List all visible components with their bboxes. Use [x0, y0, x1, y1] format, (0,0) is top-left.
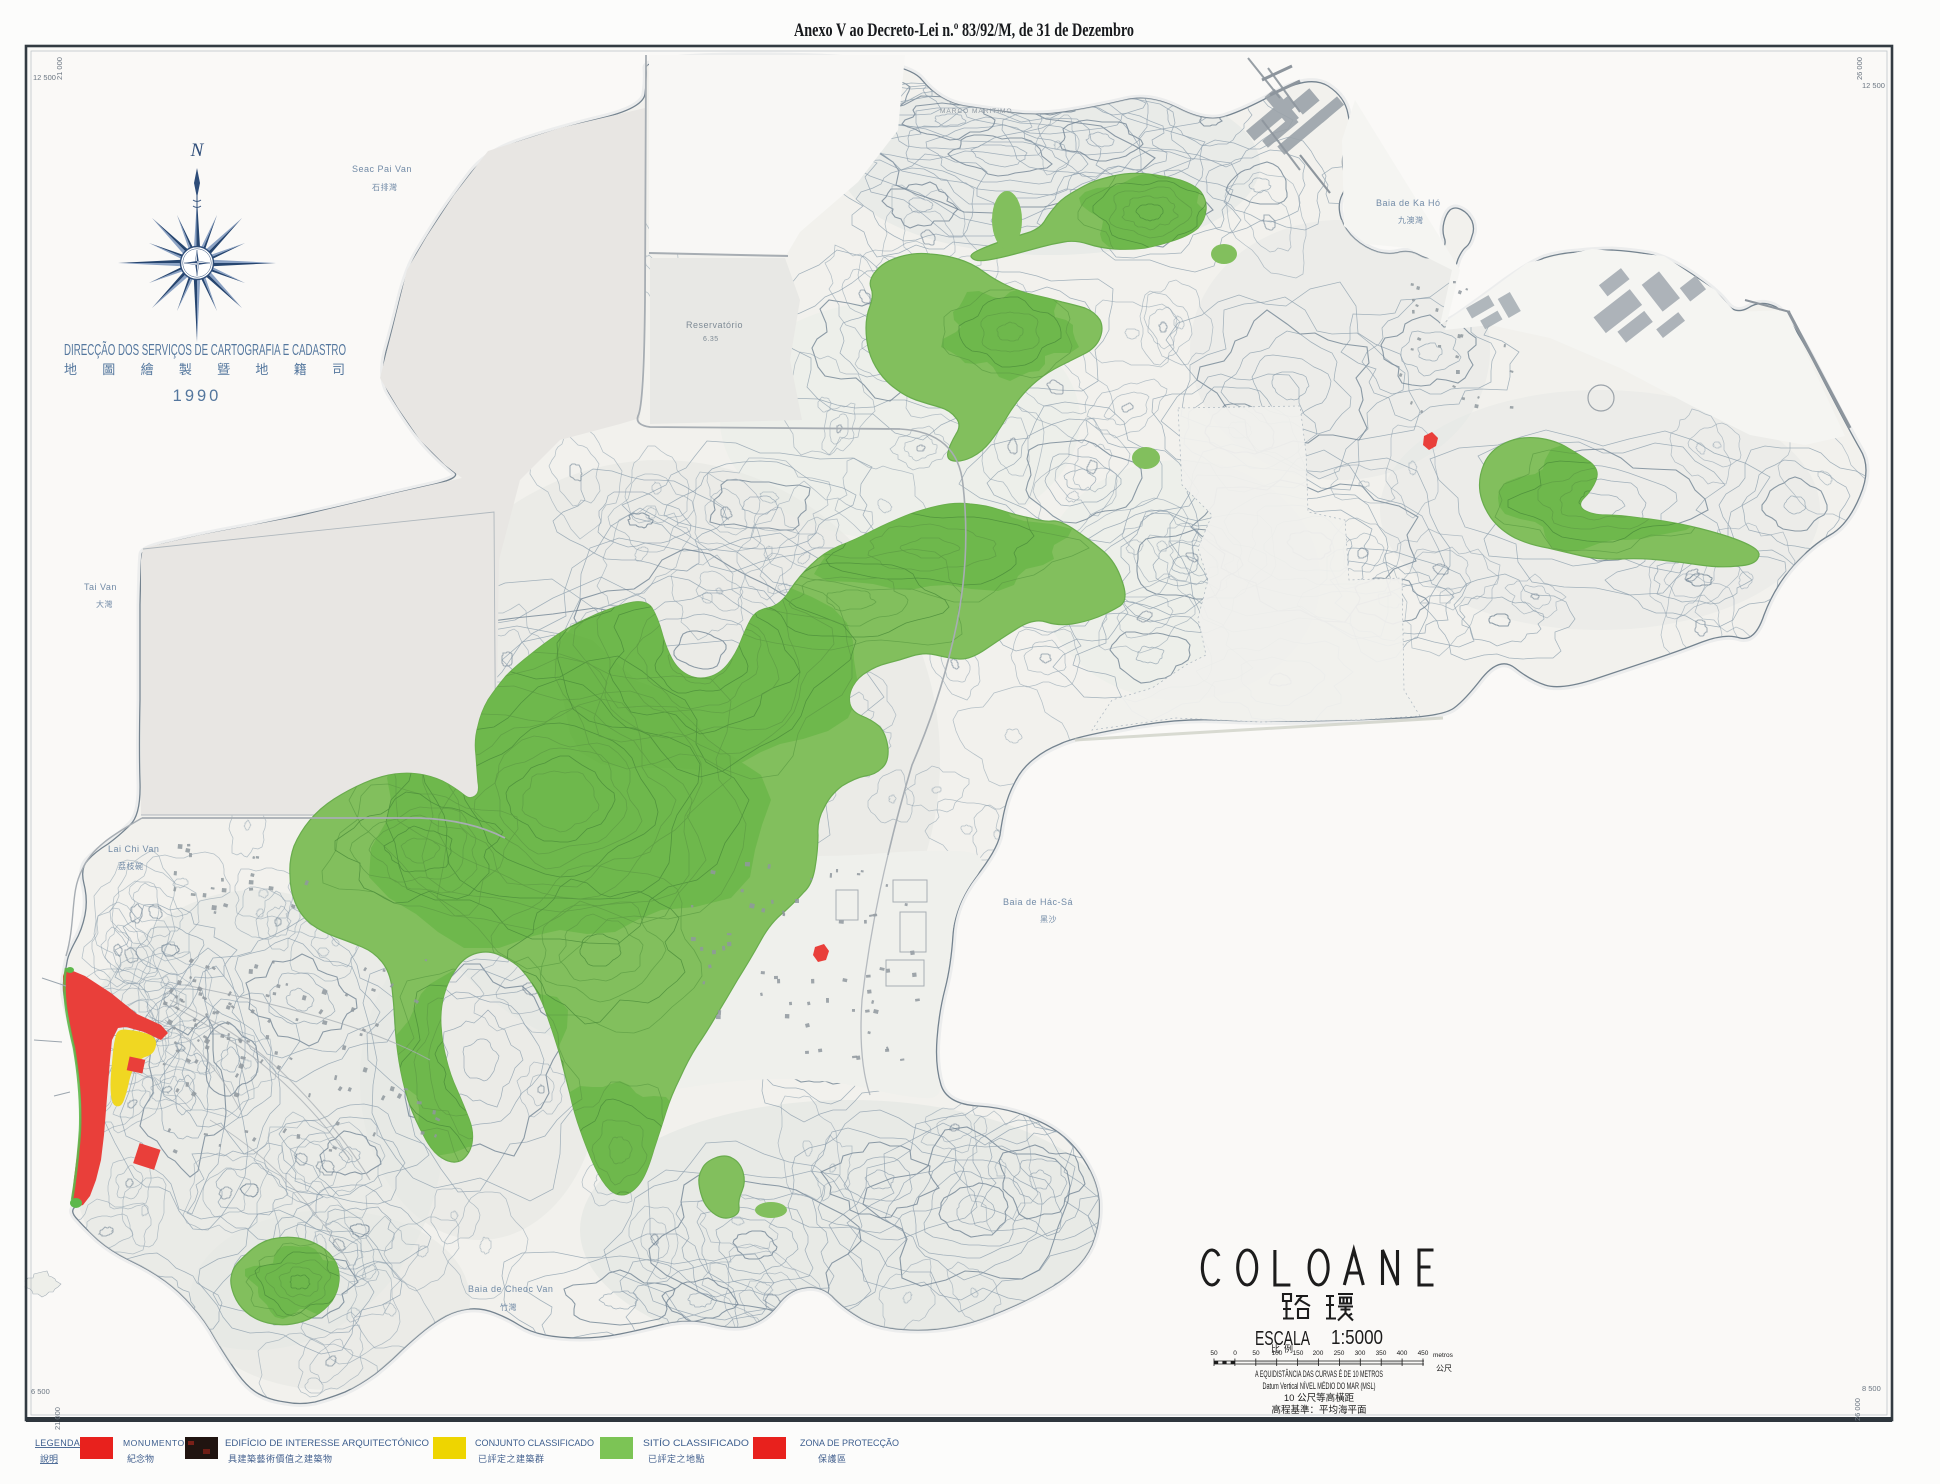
svg-text:高程基準：平均海平面: 高程基準：平均海平面 [1271, 1404, 1366, 1416]
svg-text:26 000: 26 000 [1853, 1398, 1862, 1421]
svg-text:MONUMENTO: MONUMENTO [123, 1438, 185, 1448]
svg-text:公尺: 公尺 [1436, 1364, 1452, 1373]
svg-text:250: 250 [1334, 1350, 1345, 1357]
svg-text:10 公尺等高橫距: 10 公尺等高橫距 [1284, 1392, 1355, 1404]
svg-text:說明: 說明 [40, 1453, 58, 1464]
svg-text:LEGENDA: LEGENDA [35, 1438, 80, 1448]
svg-text:0: 0 [1233, 1350, 1237, 1357]
svg-text:已評定之地點: 已評定之地點 [648, 1453, 705, 1464]
svg-text:21 000: 21 000 [55, 57, 64, 80]
svg-text:26 000: 26 000 [1855, 57, 1864, 80]
svg-text:21 000: 21 000 [53, 1407, 62, 1430]
svg-text:6 500: 6 500 [31, 1387, 50, 1396]
svg-text:1:5000: 1:5000 [1331, 1327, 1383, 1349]
svg-text:400: 400 [1397, 1350, 1408, 1357]
svg-text:450: 450 [1418, 1350, 1429, 1357]
svg-text:EDIFÍCIO DE INTERESSE ARQUITEC: EDIFÍCIO DE INTERESSE ARQUITECTÓNICO [225, 1438, 429, 1448]
svg-text:1990: 1990 [173, 387, 222, 405]
svg-text:紀念物: 紀念物 [127, 1453, 154, 1464]
svg-text:50: 50 [1252, 1350, 1260, 1357]
svg-text:CONJUNTO CLASSIFICADO: CONJUNTO CLASSIFICADO [475, 1438, 594, 1448]
svg-text:已評定之建築群: 已評定之建築群 [478, 1453, 545, 1464]
svg-text:具建築藝術價值之建築物: 具建築藝術價值之建築物 [228, 1453, 333, 1464]
svg-text:12 500: 12 500 [1862, 81, 1885, 90]
svg-text:ZONA DE PROTECÇÃO: ZONA DE PROTECÇÃO [800, 1438, 899, 1448]
svg-text:DIRECÇÃO DOS SERVIÇOS DE CARTO: DIRECÇÃO DOS SERVIÇOS DE CARTOGRAFIA E C… [64, 339, 346, 359]
svg-text:metros: metros [1433, 1352, 1454, 1359]
svg-text:200: 200 [1313, 1350, 1324, 1357]
svg-text:SITÍO CLASSIFICADO: SITÍO CLASSIFICADO [643, 1438, 749, 1448]
svg-text:50: 50 [1210, 1350, 1218, 1357]
svg-text:N: N [190, 140, 205, 161]
svg-text:Datum Vertical NÍVEL MÉDIO DO: Datum Vertical NÍVEL MÉDIO DO MAR (MSL) [1263, 1381, 1376, 1391]
svg-text:Anexo V ao Decreto-Lei n.º 83/: Anexo V ao Decreto-Lei n.º 83/92/M, de 3… [794, 20, 1134, 41]
svg-text:100: 100 [1272, 1350, 1283, 1357]
svg-text:12 500: 12 500 [33, 73, 56, 82]
svg-text:350: 350 [1376, 1350, 1387, 1357]
svg-text:A EQUIDISTÂNCIA DAS CURVAS É D: A EQUIDISTÂNCIA DAS CURVAS É DE 10 METRO… [1255, 1369, 1383, 1380]
svg-text:8 500: 8 500 [1862, 1384, 1881, 1393]
svg-text:150: 150 [1293, 1350, 1304, 1357]
svg-text:保護區: 保護區 [818, 1453, 847, 1464]
svg-text:300: 300 [1355, 1350, 1366, 1357]
